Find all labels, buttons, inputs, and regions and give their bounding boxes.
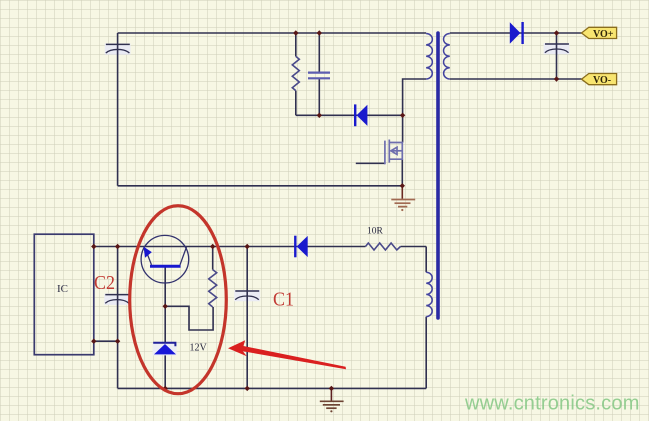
svg-text:www.cntronics.com: www.cntronics.com [464,393,640,415]
svg-text:12V: 12V [190,342,208,353]
svg-text:VO-: VO- [593,75,611,86]
svg-text:10R: 10R [367,227,384,237]
svg-text:C1: C1 [273,289,294,311]
svg-text:VO+: VO+ [593,29,614,40]
svg-text:IC: IC [57,283,68,295]
svg-text:C2: C2 [94,272,115,294]
